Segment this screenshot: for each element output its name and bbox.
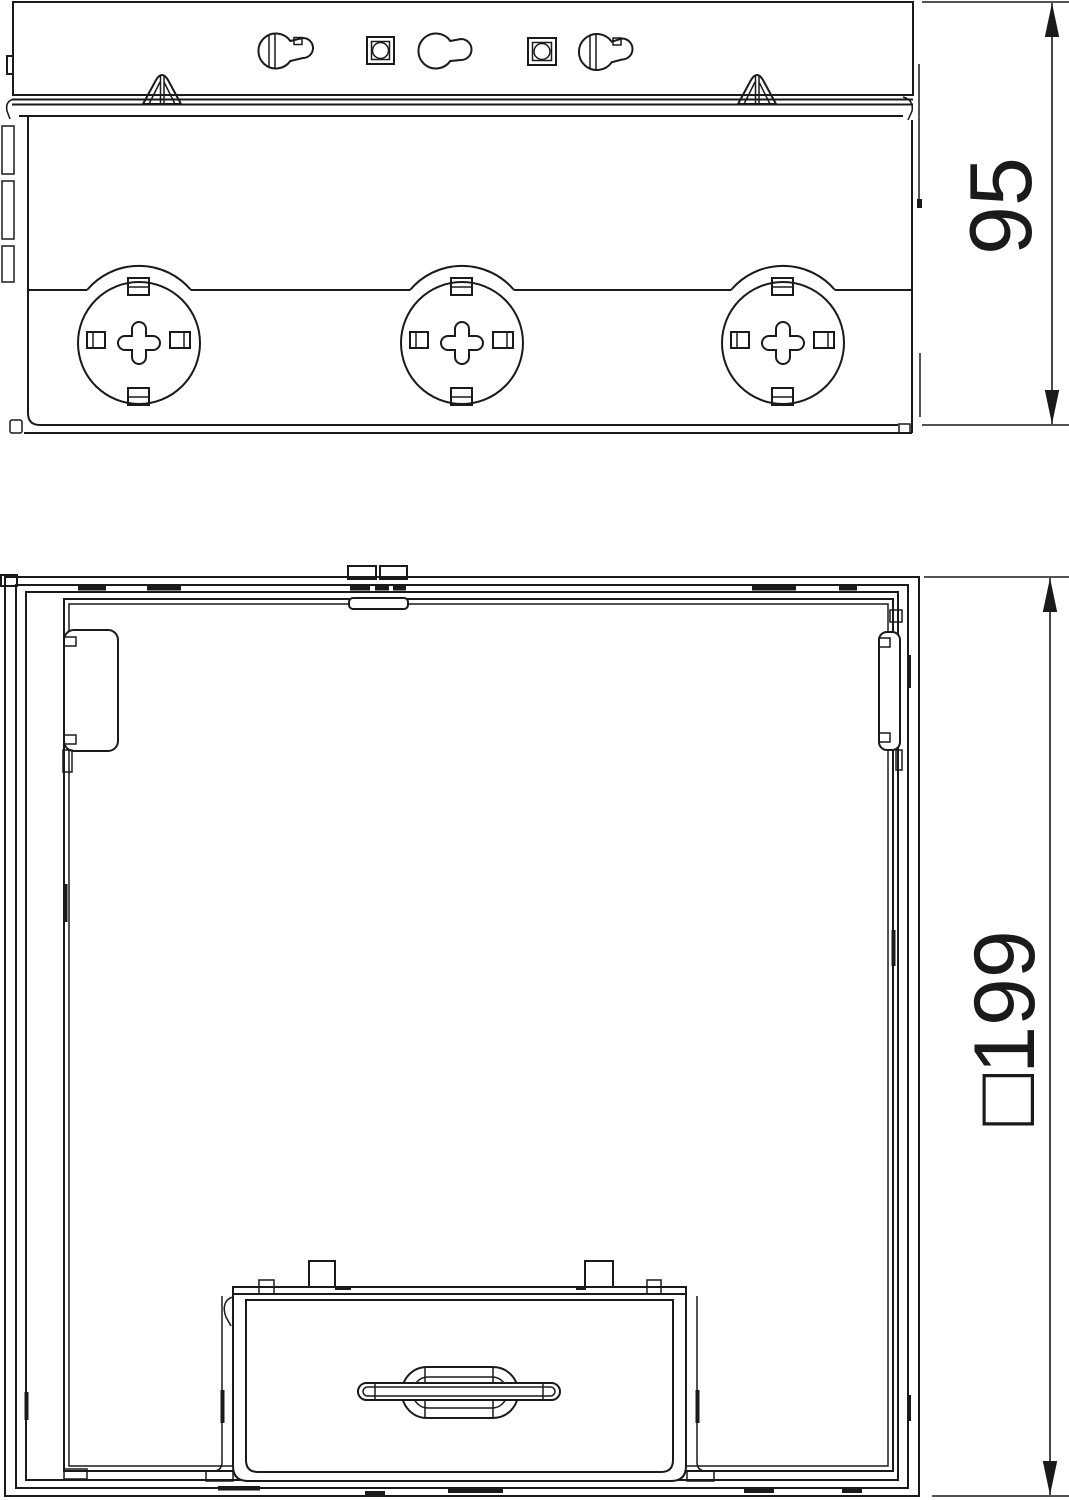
latch-pad-left <box>63 630 118 772</box>
top-edge-dashes <box>78 586 857 591</box>
mounting-plate <box>13 2 913 95</box>
cover-tab-left <box>309 1261 335 1288</box>
plate-left-notch <box>7 56 13 74</box>
arrow-down-icon <box>1045 390 1059 424</box>
dimension-height-95: 95 <box>922 2 1069 425</box>
right-foot <box>899 424 910 433</box>
square-knockout-left <box>367 37 394 64</box>
keyhole-slot-center <box>418 34 471 69</box>
body-left-edge <box>28 116 40 425</box>
recess-wall-right <box>697 1296 706 1471</box>
recess-wall-left <box>213 1296 222 1471</box>
technical-drawing-page: 95 <box>0 0 1069 1500</box>
knockout-right <box>722 266 844 405</box>
dimension-width-199: □199 <box>924 577 1069 1496</box>
cover-rail-dash-2 <box>576 1286 586 1290</box>
left-bracket-1 <box>2 126 14 174</box>
plan-view <box>1 566 919 1496</box>
latch-pad-right <box>879 610 902 770</box>
cover-tab-right <box>585 1261 613 1288</box>
left-bracket-3 <box>2 246 14 282</box>
rail-left-hook <box>7 99 14 119</box>
right-edge-tick <box>917 199 922 208</box>
square-knockout-right <box>528 38 556 65</box>
left-bracket-2 <box>2 181 14 239</box>
knockout-center <box>401 266 523 405</box>
keyhole-slot-screwed-right <box>579 34 633 70</box>
left-foot <box>10 420 22 433</box>
cover-rail-dash-1 <box>335 1286 351 1290</box>
dimension-label-199: □199 <box>957 930 1053 1125</box>
arrow-down-icon <box>1043 1461 1057 1495</box>
knockout-left <box>78 266 200 405</box>
cover-left-hook <box>224 1297 233 1326</box>
top-latch-notch <box>349 598 408 609</box>
technical-drawing: 95 <box>0 0 1069 1500</box>
recess-tick-right <box>696 1390 700 1423</box>
handle-bar[interactable] <box>358 1383 560 1400</box>
arrow-up-icon <box>1043 578 1057 612</box>
recess-tick-left <box>221 1390 225 1423</box>
dimension-label-95: 95 <box>951 157 1050 255</box>
keyhole-slot-screwed-left <box>258 34 313 69</box>
cover-unit <box>206 1261 714 1481</box>
side-view <box>2 2 922 433</box>
arrow-up-icon <box>1045 3 1059 37</box>
